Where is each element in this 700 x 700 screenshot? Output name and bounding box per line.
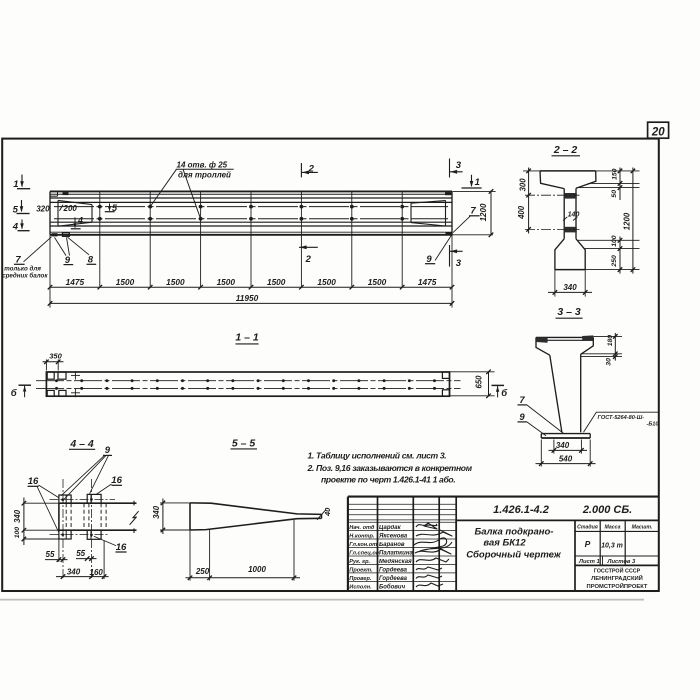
svg-text:160: 160 — [90, 568, 104, 577]
svg-text:Н.контр.: Н.контр. — [349, 534, 375, 540]
svg-text:2: 2 — [305, 254, 312, 265]
svg-text:30: 30 — [605, 358, 612, 366]
svg-text:400: 400 — [517, 205, 526, 220]
svg-text:9: 9 — [105, 445, 111, 456]
svg-text:Провер.: Провер. — [349, 576, 372, 582]
svg-text:Масса: Масса — [605, 525, 621, 531]
svg-text:Баранов: Баранов — [379, 542, 405, 548]
svg-text:1475: 1475 — [66, 277, 85, 287]
svg-text:4: 4 — [77, 216, 83, 226]
svg-text:ГОССТРОЙ СССР: ГОССТРОЙ СССР — [594, 567, 641, 575]
svg-text:2: 2 — [308, 164, 315, 175]
svg-text:16: 16 — [28, 476, 39, 487]
svg-text:150: 150 — [611, 168, 618, 180]
svg-text:Стадия: Стадия — [577, 525, 598, 531]
svg-text:Гл.кон.от: Гл.кон.от — [349, 542, 377, 548]
svg-text:2. Поз. 9,16 заказываются в ко: 2. Поз. 9,16 заказываются в конкретном — [307, 463, 473, 473]
svg-text:Листов 3: Листов 3 — [607, 559, 636, 565]
svg-text:Балка подкрано-: Балка подкрано- — [475, 527, 554, 538]
svg-text:650: 650 — [475, 375, 484, 389]
svg-text:100: 100 — [14, 527, 21, 539]
svg-text:5 – 5: 5 – 5 — [232, 438, 256, 450]
svg-text:7: 7 — [470, 206, 476, 217]
svg-text:Палаткина: Палаткина — [379, 551, 413, 557]
svg-text:20: 20 — [651, 126, 665, 138]
svg-text:250: 250 — [611, 255, 618, 268]
svg-text:3 – 3: 3 – 3 — [557, 306, 581, 318]
svg-text:Гордеева: Гордеева — [379, 576, 408, 582]
svg-text:1500: 1500 — [166, 277, 185, 287]
svg-text:Масшт.: Масшт. — [632, 525, 653, 531]
svg-text:11950: 11950 — [236, 293, 259, 303]
svg-text:только для: только для — [4, 265, 41, 272]
svg-text:ЛЕНИНГРАДСКИЙ: ЛЕНИНГРАДСКИЙ — [591, 574, 643, 582]
svg-text:Гл.спец.от: Гл.спец.от — [349, 551, 380, 557]
svg-text:540: 540 — [559, 454, 573, 463]
svg-text:340: 340 — [13, 509, 22, 523]
svg-text:1: 1 — [475, 177, 480, 188]
svg-text:320: 320 — [36, 205, 50, 214]
svg-text:1475: 1475 — [418, 277, 437, 287]
svg-text:3: 3 — [456, 258, 462, 269]
svg-text:50: 50 — [611, 190, 618, 198]
svg-text:1 – 1: 1 – 1 — [235, 332, 259, 344]
svg-text:-Б10: -Б10 — [646, 421, 659, 427]
svg-text:340: 340 — [563, 283, 577, 292]
svg-text:4 – 4: 4 – 4 — [69, 438, 94, 450]
svg-text:1500: 1500 — [217, 277, 236, 287]
svg-text:55: 55 — [76, 549, 85, 558]
svg-text:Сборочный чертеж: Сборочный чертеж — [466, 550, 562, 561]
svg-text:100: 100 — [611, 235, 618, 247]
svg-text:16: 16 — [116, 542, 127, 553]
svg-text:1500: 1500 — [317, 277, 336, 287]
svg-text:140: 140 — [568, 211, 580, 218]
svg-text:180: 180 — [607, 335, 614, 347]
svg-text:350: 350 — [49, 352, 62, 361]
svg-text:1500: 1500 — [368, 277, 387, 287]
svg-text:Гордеева: Гордеева — [379, 568, 408, 574]
svg-text:1500: 1500 — [267, 277, 286, 287]
svg-text:1.426.1-4.2: 1.426.1-4.2 — [493, 504, 549, 516]
svg-text:Р: Р — [585, 539, 591, 549]
svg-text:Проект.: Проект. — [349, 568, 373, 574]
svg-text:14 отв. ф 25: 14 отв. ф 25 — [177, 161, 228, 170]
svg-text:Исполн.: Исполн. — [349, 584, 372, 590]
svg-text:1. Таблицу исполнений см. лис: 1. Таблицу исполнений см. лист 3. — [308, 451, 447, 461]
svg-text:ГОСТ-5264-80-Ш-: ГОСТ-5264-80-Ш- — [598, 415, 645, 421]
svg-text:Медянская: Медянская — [379, 559, 412, 565]
svg-text:16: 16 — [111, 475, 122, 486]
svg-text:ПРОМСТРОЙПРОЕКТ: ПРОМСТРОЙПРОЕКТ — [587, 582, 648, 590]
svg-text:Нач. отд: Нач. отд — [349, 525, 375, 531]
svg-text:средних балок: средних балок — [2, 273, 48, 280]
svg-text:250: 250 — [195, 567, 210, 576]
svg-text:2 – 2: 2 – 2 — [553, 144, 578, 156]
svg-text:проекте по черт 1.426.1-41 1 а: проекте по черт 1.426.1-41 1 або. — [321, 475, 455, 485]
svg-text:2.000 СБ.: 2.000 СБ. — [582, 504, 632, 516]
svg-text:Лист 1: Лист 1 — [578, 559, 600, 565]
svg-text:340: 340 — [67, 567, 81, 576]
svg-text:340: 340 — [152, 505, 161, 519]
svg-text:55: 55 — [46, 550, 55, 559]
svg-text:200: 200 — [63, 204, 78, 213]
svg-text:Рук. гр.: Рук. гр. — [349, 559, 370, 565]
svg-text:1500: 1500 — [116, 277, 135, 287]
svg-text:3: 3 — [456, 160, 462, 171]
svg-text:40: 40 — [323, 507, 332, 517]
svg-text:Цардак: Цардак — [379, 525, 402, 531]
svg-text:1200: 1200 — [623, 212, 632, 230]
svg-text:10,3 т: 10,3 т — [601, 543, 623, 550]
svg-text:вая БК12: вая БК12 — [483, 538, 526, 549]
svg-text:1000: 1000 — [248, 565, 266, 574]
svg-text:300: 300 — [518, 178, 527, 192]
svg-text:Яксенова: Яксенова — [378, 534, 408, 540]
svg-text:340: 340 — [556, 441, 570, 450]
svg-text:Бобович: Бобович — [379, 583, 406, 590]
svg-text:1200: 1200 — [479, 203, 488, 221]
